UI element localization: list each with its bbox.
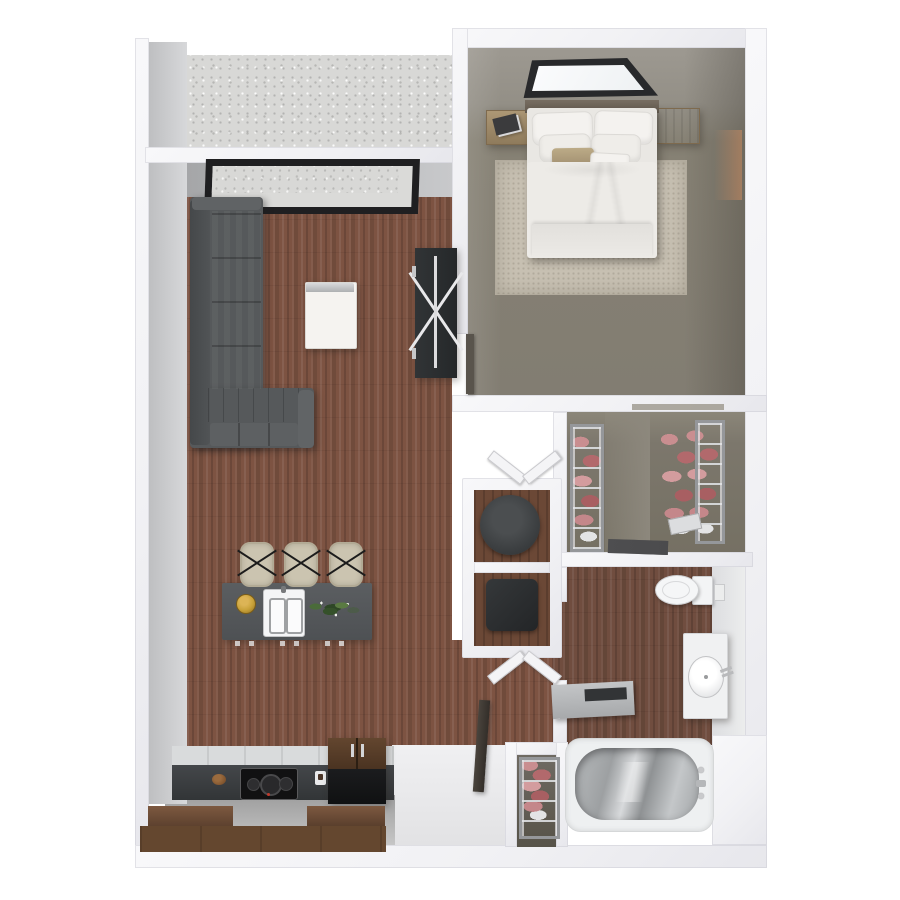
fridge-front [328, 769, 386, 804]
entry-closet-wire-shelf [519, 757, 560, 839]
lower-cabinet-left [148, 806, 233, 828]
toilet-bowl [655, 575, 699, 605]
toilet-seat-line [662, 581, 690, 599]
vanity-sink [688, 656, 724, 698]
bar-stool-3 [329, 542, 363, 587]
entry-closet-wall-left [505, 742, 517, 847]
bathtub-water-highlight [593, 762, 681, 802]
burner-indicator [267, 793, 270, 796]
washer-drum-top [480, 495, 540, 555]
coffee-cup [315, 771, 326, 785]
sofa-arm-right [298, 390, 314, 448]
closet-shelf-left-unit [570, 424, 604, 552]
sofa-backrest-left [190, 200, 210, 445]
console-handle-bottom [412, 348, 416, 359]
fridge-door-divider [356, 738, 358, 769]
bathroom-vanity [683, 633, 728, 719]
sink-basin-left [269, 598, 286, 634]
console-handle-top [412, 266, 416, 277]
bar-stool-2 [284, 542, 318, 587]
closet-left-wire-frame [570, 424, 604, 552]
burner-3 [279, 777, 293, 791]
dryer-bay [474, 573, 550, 646]
kitchen-island [222, 583, 372, 640]
cooktop [240, 768, 298, 800]
toilet-paper-holder [714, 584, 725, 601]
dryer-top [486, 579, 538, 631]
bathtub-interior [575, 748, 699, 820]
burner-1 [247, 778, 260, 791]
shelf-tray [584, 687, 627, 701]
tub-surround-wall [712, 735, 767, 845]
island-sink [263, 589, 305, 637]
nightstand-left [486, 110, 528, 145]
bathroom-wall-shelf [551, 681, 635, 719]
bathtub-faucet [696, 767, 706, 801]
toilet [655, 574, 712, 605]
laundry-closet [462, 478, 562, 658]
bar-stool-1 [240, 542, 274, 587]
bed-folded-blanket [532, 224, 652, 258]
laundry-shelf-divider [474, 562, 550, 573]
sectional-sofa [190, 197, 314, 448]
sofa-seat-cushions-vertical [212, 211, 261, 389]
book [492, 113, 519, 135]
stool-floor-marks [235, 641, 365, 646]
exterior-wall-top [452, 28, 767, 48]
entry-closet [505, 742, 568, 847]
nightstand-right [656, 108, 700, 144]
sink-drain [704, 675, 708, 679]
balcony-floor [180, 55, 452, 147]
bathtub [565, 738, 714, 832]
wood-bowl [212, 774, 226, 785]
fridge-top-doors [328, 738, 386, 769]
sofa-seat-cushions-bottom [210, 423, 298, 446]
closet-divider-wall-face [605, 412, 650, 552]
console-x-leg-3 [434, 256, 437, 368]
coffee-table-chrome-edge [306, 283, 354, 292]
gold-plate [236, 594, 256, 614]
coffee-table [305, 282, 357, 349]
lower-cabinet-right [307, 806, 385, 826]
sofa-backrest-bottom [208, 388, 300, 422]
refrigerator [328, 738, 386, 804]
bed-group [486, 96, 698, 261]
floor-plan-canvas [0, 0, 900, 900]
sofa-arm-top [192, 197, 261, 210]
sink-faucet [281, 586, 286, 593]
sink-basin-right [286, 598, 303, 634]
media-console [415, 248, 457, 378]
closet-rod-shelf [632, 404, 724, 410]
bedroom-wall-reflection [714, 130, 742, 200]
closet-shelf-right-unit [655, 420, 725, 544]
bedroom-window-glass [532, 65, 644, 91]
lower-cabinet-front [140, 826, 386, 852]
island-herb-plant [304, 597, 362, 621]
window-glass-view [212, 166, 399, 193]
washer-bay [474, 490, 550, 562]
fridge-handle-right [361, 744, 364, 757]
closet-dresser-top [608, 539, 668, 555]
fridge-handle-left [351, 744, 354, 757]
bedroom-door-panel [466, 334, 474, 394]
